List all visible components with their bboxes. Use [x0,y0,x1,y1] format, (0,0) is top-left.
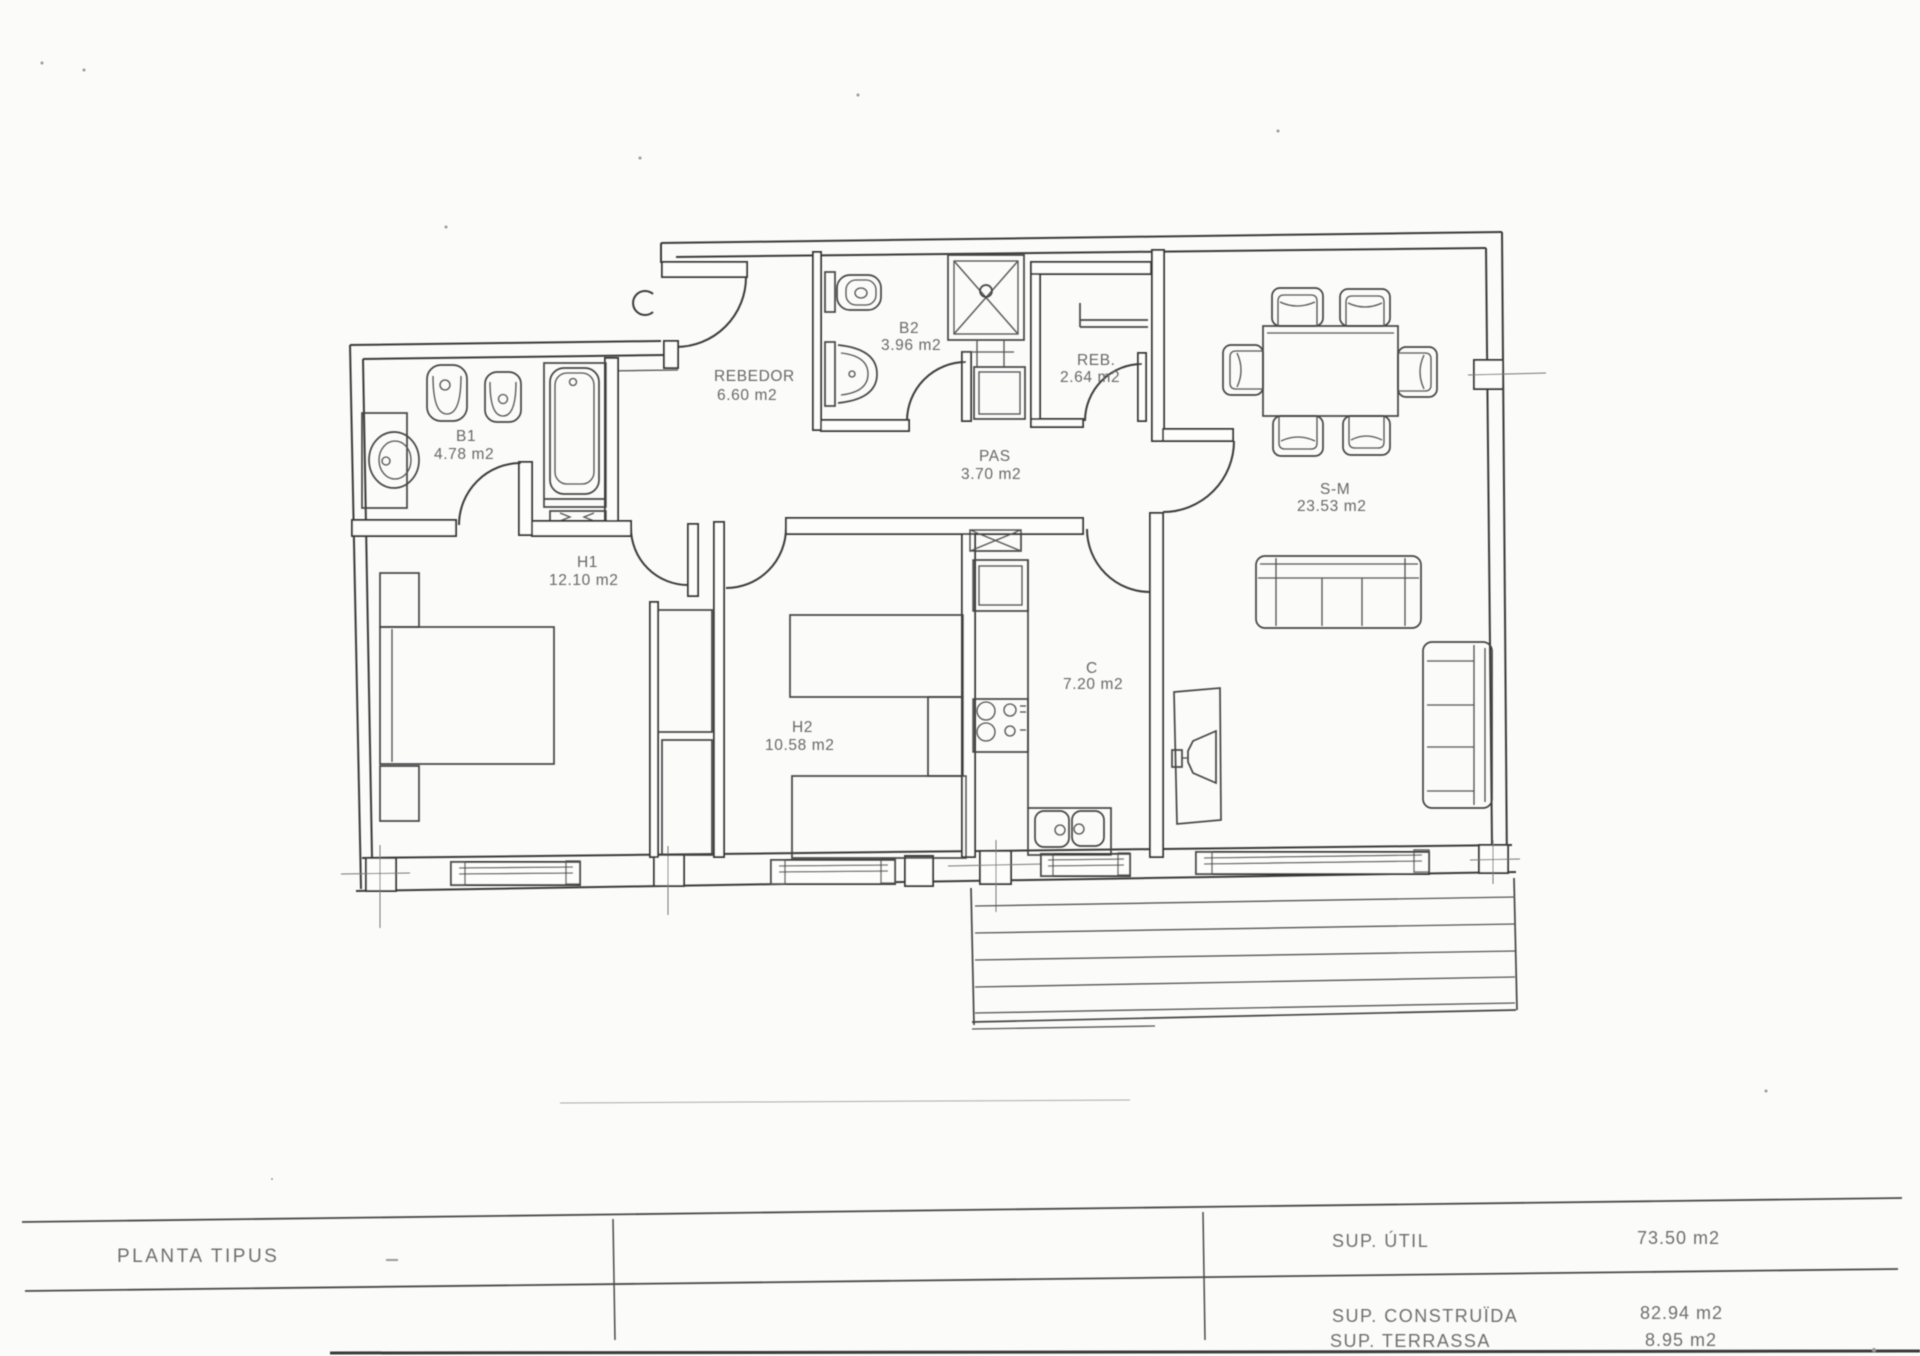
svg-text:6.60 m2: 6.60 m2 [717,387,777,404]
svg-text:23.53 m2: 23.53 m2 [1297,498,1366,515]
svg-text:H1: H1 [577,554,598,571]
svg-text:REBEDOR: REBEDOR [714,368,795,385]
svg-text:8.95 m2: 8.95 m2 [1645,1330,1717,1350]
svg-text:SUP. CONSTRUÏDA: SUP. CONSTRUÏDA [1332,1306,1518,1326]
svg-text:4.78 m2: 4.78 m2 [434,446,494,463]
svg-text:12.10 m2: 12.10 m2 [549,572,618,589]
svg-text:82.94 m2: 82.94 m2 [1640,1303,1723,1323]
svg-text:B2: B2 [899,320,919,337]
svg-text:S-M: S-M [1320,481,1350,498]
svg-text:PLANTA TIPUS: PLANTA TIPUS [117,1246,279,1267]
svg-text:H2: H2 [792,719,813,736]
svg-text:10.58 m2: 10.58 m2 [765,737,834,754]
svg-text:SUP. TERRASSA: SUP. TERRASSA [1330,1331,1491,1351]
svg-text:73.50 m2: 73.50 m2 [1637,1228,1720,1248]
svg-text:3.96 m2: 3.96 m2 [881,337,941,354]
svg-text:REB.: REB. [1077,352,1116,369]
svg-text:C: C [1086,660,1098,677]
svg-text:SUP. ÚTIL: SUP. ÚTIL [1332,1230,1429,1251]
svg-text:PAS: PAS [979,448,1011,465]
svg-text:3.70 m2: 3.70 m2 [961,466,1021,483]
svg-text:7.20 m2: 7.20 m2 [1063,676,1123,693]
svg-text:B1: B1 [456,428,476,445]
svg-text:2.64 m2: 2.64 m2 [1060,369,1120,386]
